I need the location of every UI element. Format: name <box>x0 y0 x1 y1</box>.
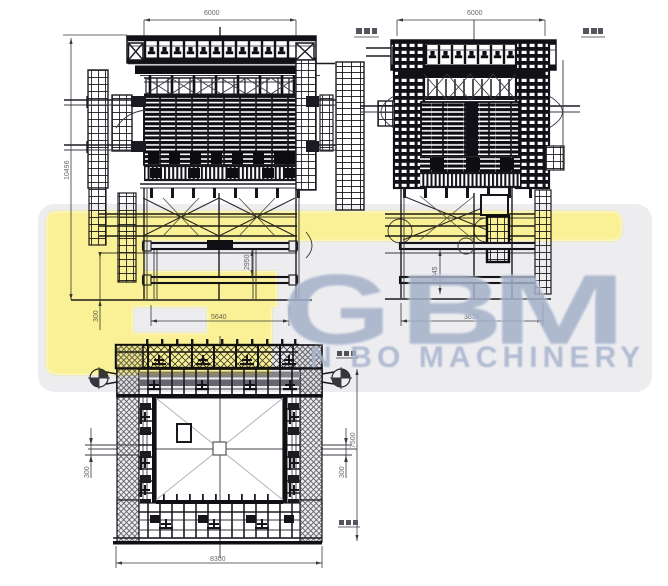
svg-text:10496: 10496 <box>64 160 71 180</box>
svg-text:7500: 7500 <box>350 432 357 448</box>
svg-text:6000: 6000 <box>204 10 220 17</box>
svg-text:N BO MACHINERY: N BO MACHINERY <box>310 341 645 374</box>
svg-text:6000: 6000 <box>467 10 483 17</box>
svg-text:300: 300 <box>84 466 91 478</box>
svg-text:300: 300 <box>339 466 346 478</box>
svg-text:8300: 8300 <box>210 556 226 563</box>
